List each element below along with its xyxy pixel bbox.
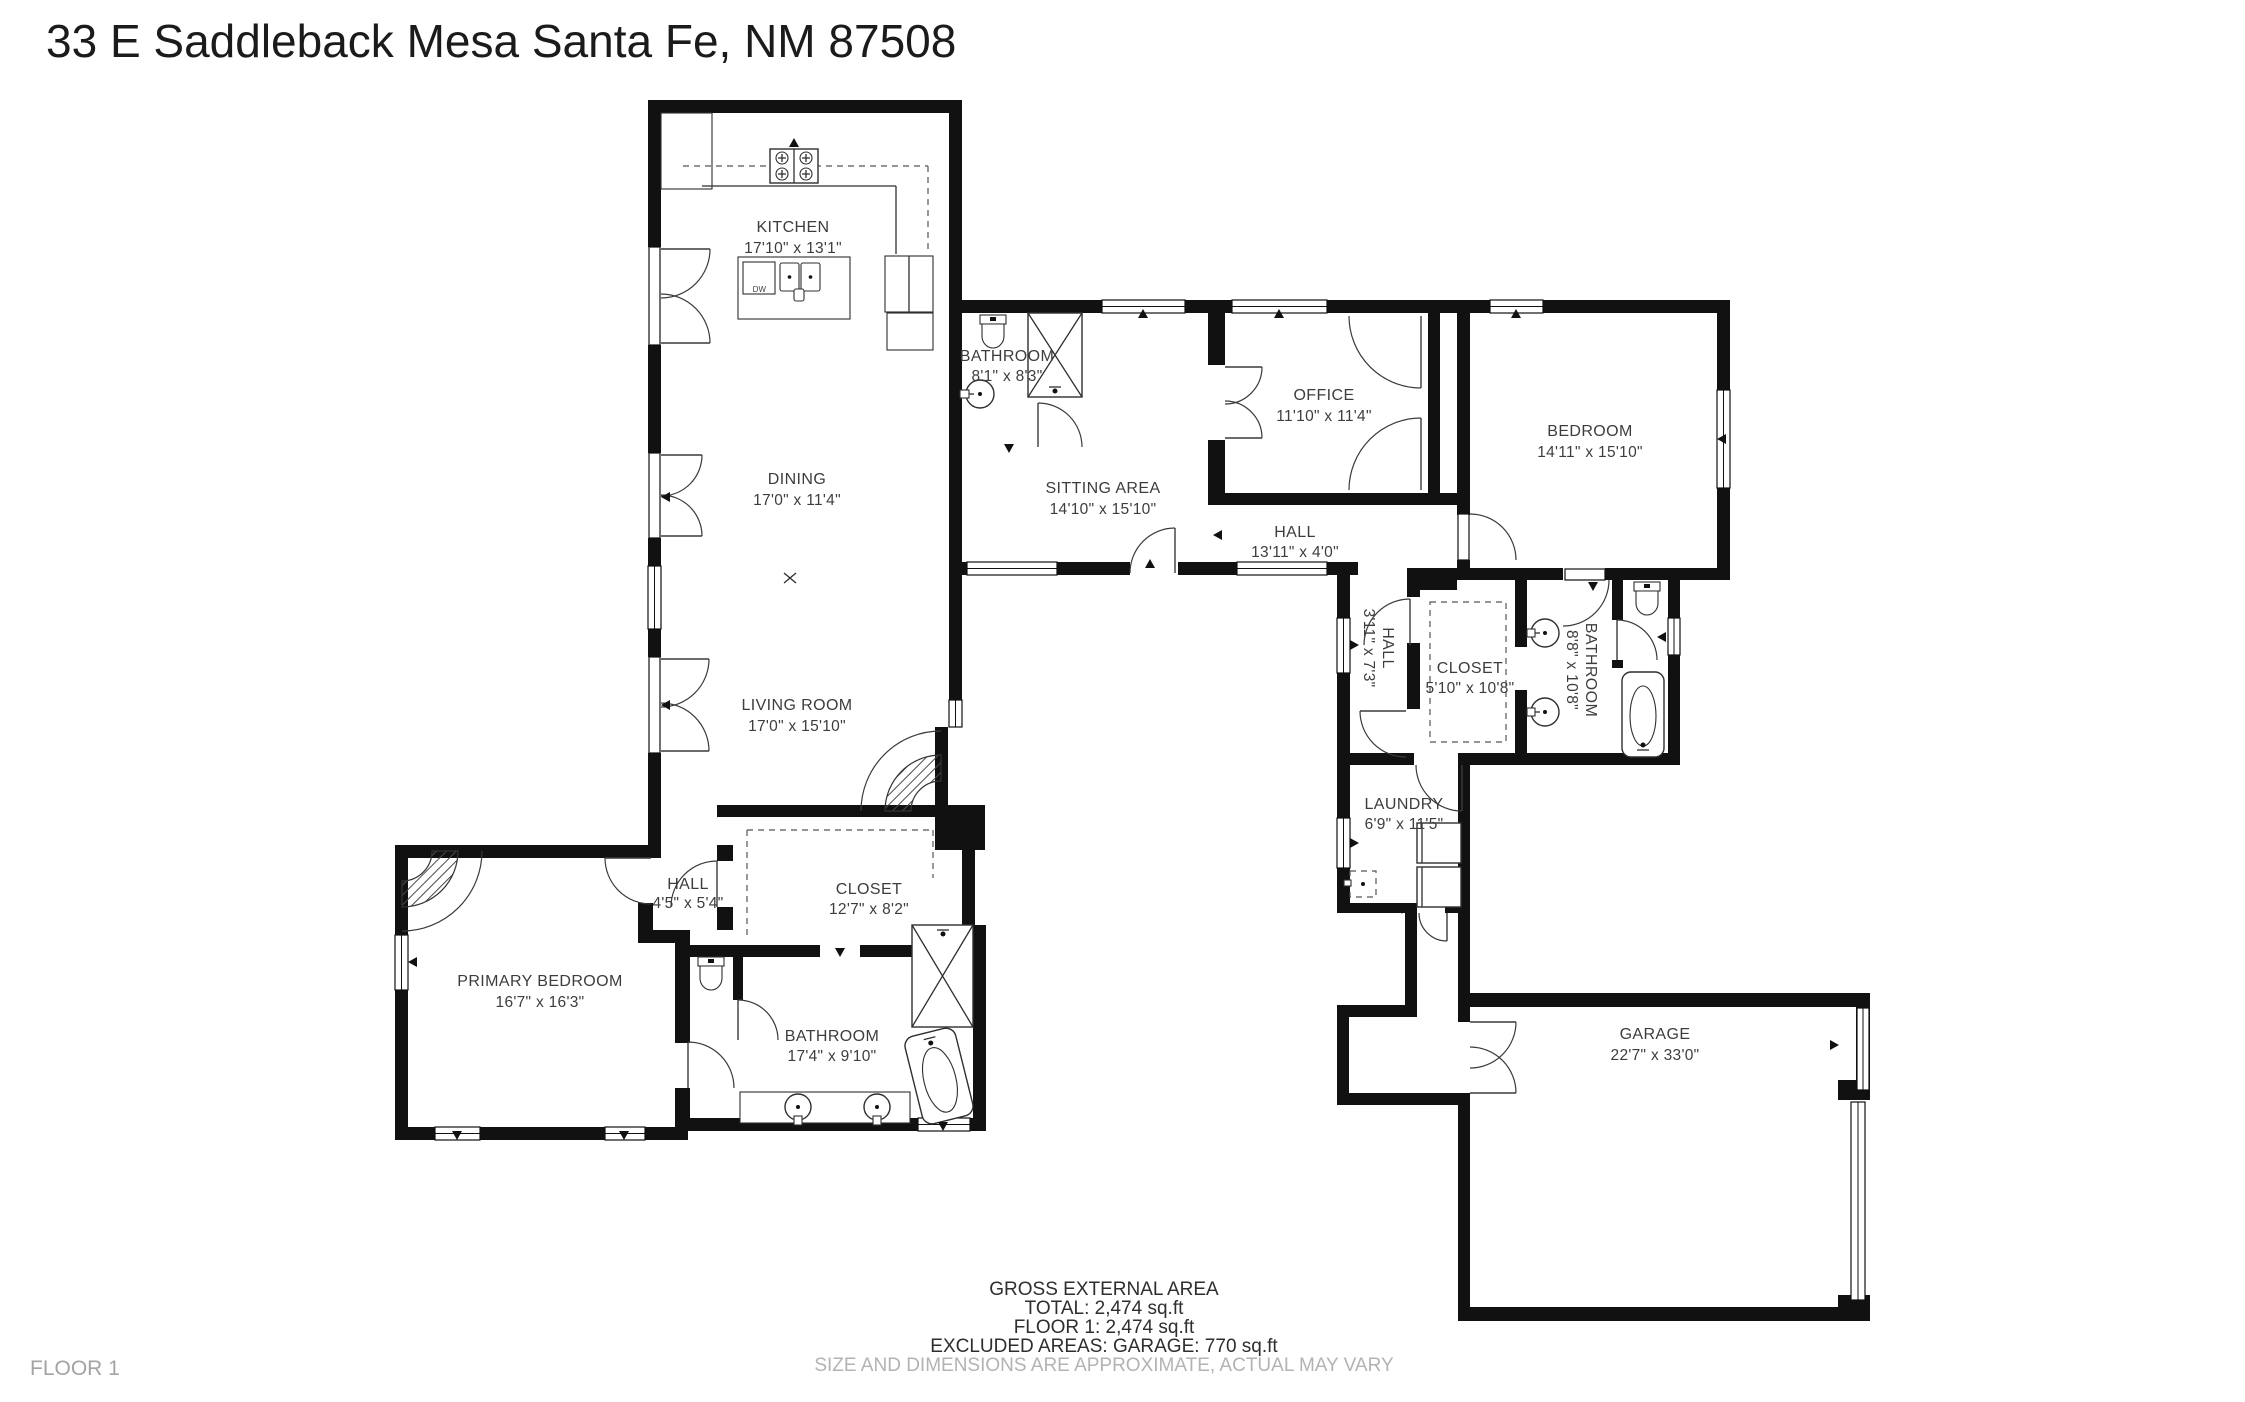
page-title: 33 E Saddleback Mesa Santa Fe, NM 87508 [46,15,956,67]
footer: GROSS EXTERNAL AREA TOTAL: 2,474 sq.ft F… [814,1279,1394,1376]
fireplace-icon [861,731,941,811]
room-dims-laundry: 6'9" x 11'5" [1365,816,1444,833]
stove-icon [770,149,818,183]
room-label-laundry: LAUNDRY [1365,796,1444,813]
room-dims-bathroom-guest: 8'1" x 8'3" [971,368,1042,385]
room-dims-hall-vertical: 3'11" x 7'3" [1360,609,1377,688]
room-label-kitchen: KITCHEN [756,219,829,236]
room-label-closet-primary: CLOSET [836,881,902,898]
room-dims-living-room: 17'0" x 15'10" [748,718,846,735]
room-dims-dining: 17'0" x 11'4" [753,492,841,509]
fridge-icon [885,256,933,350]
room-dims-closet-right: 5'10" x 10'8" [1426,680,1515,697]
room-dims-kitchen: 17'10" x 13'1" [744,240,842,257]
room-label-garage: GARAGE [1620,1026,1691,1043]
room-label-hall-main: HALL [1274,524,1316,541]
room-label-hall-vertical: HALL [1379,627,1396,669]
footer-disclaimer: SIZE AND DIMENSIONS ARE APPROXIMATE, ACT… [814,1355,1394,1376]
room-label-closet-right: CLOSET [1437,660,1503,677]
room-label-living-room: LIVING ROOM [741,697,852,714]
room-dims-bathroom-right: 8'8" x 10'8" [1563,630,1580,710]
room-dims-garage: 22'7" x 33'0" [1611,1047,1700,1064]
footer-floor1: FLOOR 1: 2,474 sq.ft [1014,1317,1195,1338]
vanity-icon [740,1092,910,1125]
dishwasher-label: DW [753,285,767,294]
windows [395,300,1869,1300]
sink-icon [1527,698,1559,726]
room-dims-bathroom-primary: 17'4" x 9'10" [788,1048,877,1065]
room-dims-sitting-area: 14'10" x 15'10" [1050,501,1157,518]
footer-area-heading: GROSS EXTERNAL AREA [989,1279,1219,1300]
laundry-fixtures [1344,823,1461,907]
dryer-icon [1417,867,1461,907]
footer-excluded: EXCLUDED AREAS: GARAGE: 770 sq.ft [930,1336,1278,1357]
room-label-bathroom-right-group: BATHROOM 8'8" x 10'8" [1563,623,1599,717]
room-label-bathroom-primary: BATHROOM [785,1028,879,1045]
room-dims-bedroom: 14'11" x 15'10" [1537,444,1643,461]
kitchen-cabinet [661,113,712,189]
room-label-bathroom-right: BATHROOM [1582,623,1599,717]
room-label-office: OFFICE [1293,387,1354,404]
footer-total: TOTAL: 2,474 sq.ft [1025,1298,1184,1319]
ceiling-fan-icon [784,573,796,583]
toilet-icon [698,957,724,990]
bathtub-icon [903,1026,975,1126]
faucet-icon [794,289,804,301]
room-label-bedroom: BEDROOM [1547,423,1632,440]
range-hood-marker [789,138,799,147]
floor-plan-page: { "title": "33 E Saddleback Mesa Santa F… [0,0,2245,1402]
room-dims-hall-small: 4'5" x 5'4" [652,895,723,912]
bathtub-icon [1622,672,1664,757]
room-label-sitting-area: SITTING AREA [1045,480,1160,497]
room-label-dining: DINING [768,471,826,488]
room-label-primary-bedroom: PRIMARY BEDROOM [457,973,622,990]
room-label-bathroom-guest: BATHROOM [960,348,1054,365]
kitchen-fixtures: DW [661,113,933,583]
room-dims-hall-main: 13'11" x 4'0" [1251,544,1339,561]
room-dims-office: 11'10" x 11'4" [1276,408,1372,425]
room-dims-closet-primary: 12'7" x 8'2" [829,901,909,918]
fireplace-icon [402,851,482,931]
room-label-hall-vertical-group: HALL 3'11" x 7'3" [1360,609,1396,688]
room-label-hall-small: HALL [667,876,709,893]
kitchen-island: DW [738,257,850,319]
floor-label: FLOOR 1 [30,1357,120,1380]
sink-icon [1527,619,1559,647]
toilet-icon [1634,582,1660,615]
room-dims-primary-bedroom: 16'7" x 16'3" [496,994,585,1011]
floor-plan-canvas: 33 E Saddleback Mesa Santa Fe, NM 87508 [0,0,2245,1402]
toilet-icon [980,315,1006,348]
shower-icon [912,925,973,1027]
